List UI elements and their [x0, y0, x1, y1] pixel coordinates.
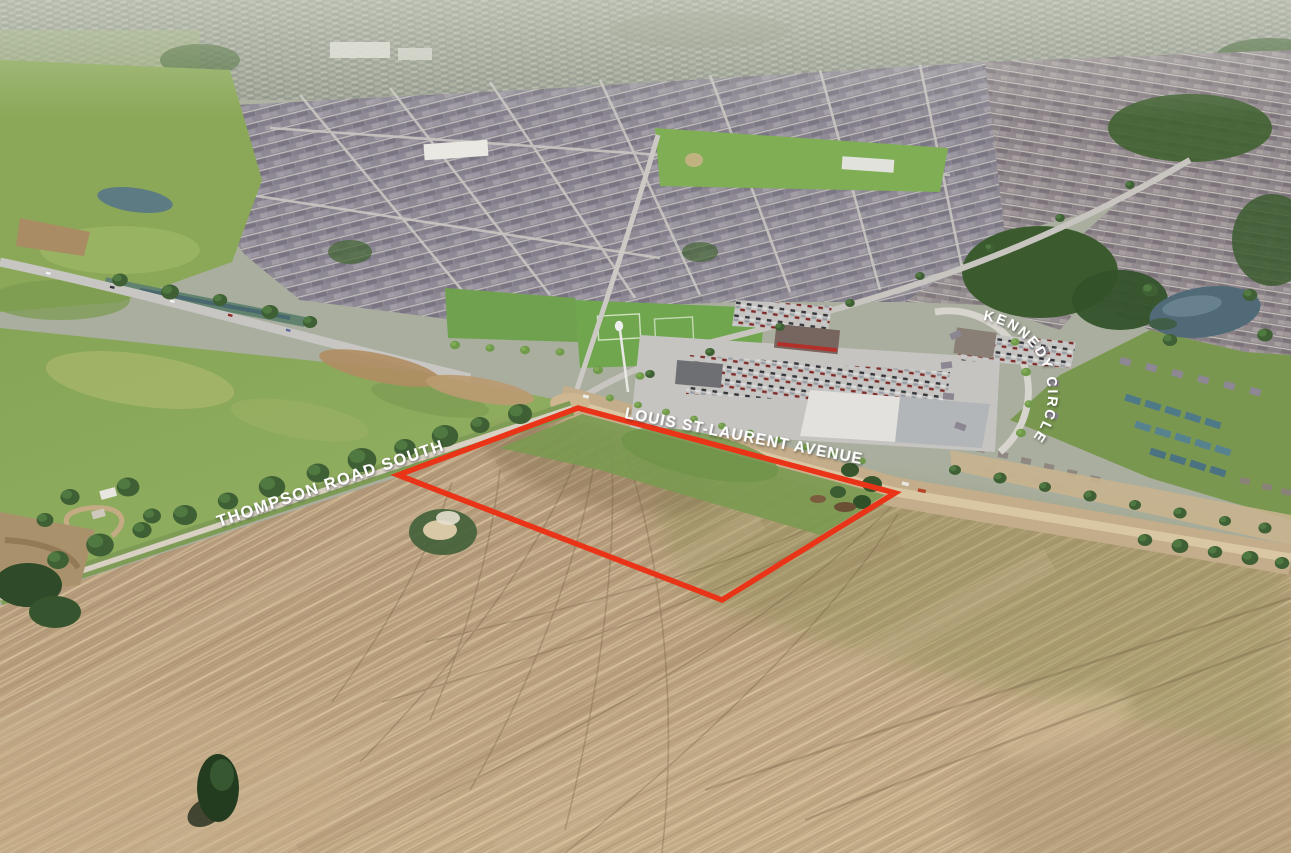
aerial-site-photo: THOMPSON ROAD SOUTH LOUIS ST-LAURENT AVE… — [0, 0, 1291, 853]
haze-overlay — [0, 0, 1291, 120]
aerial-photo-canvas: THOMPSON ROAD SOUTH LOUIS ST-LAURENT AVE… — [0, 0, 1291, 853]
